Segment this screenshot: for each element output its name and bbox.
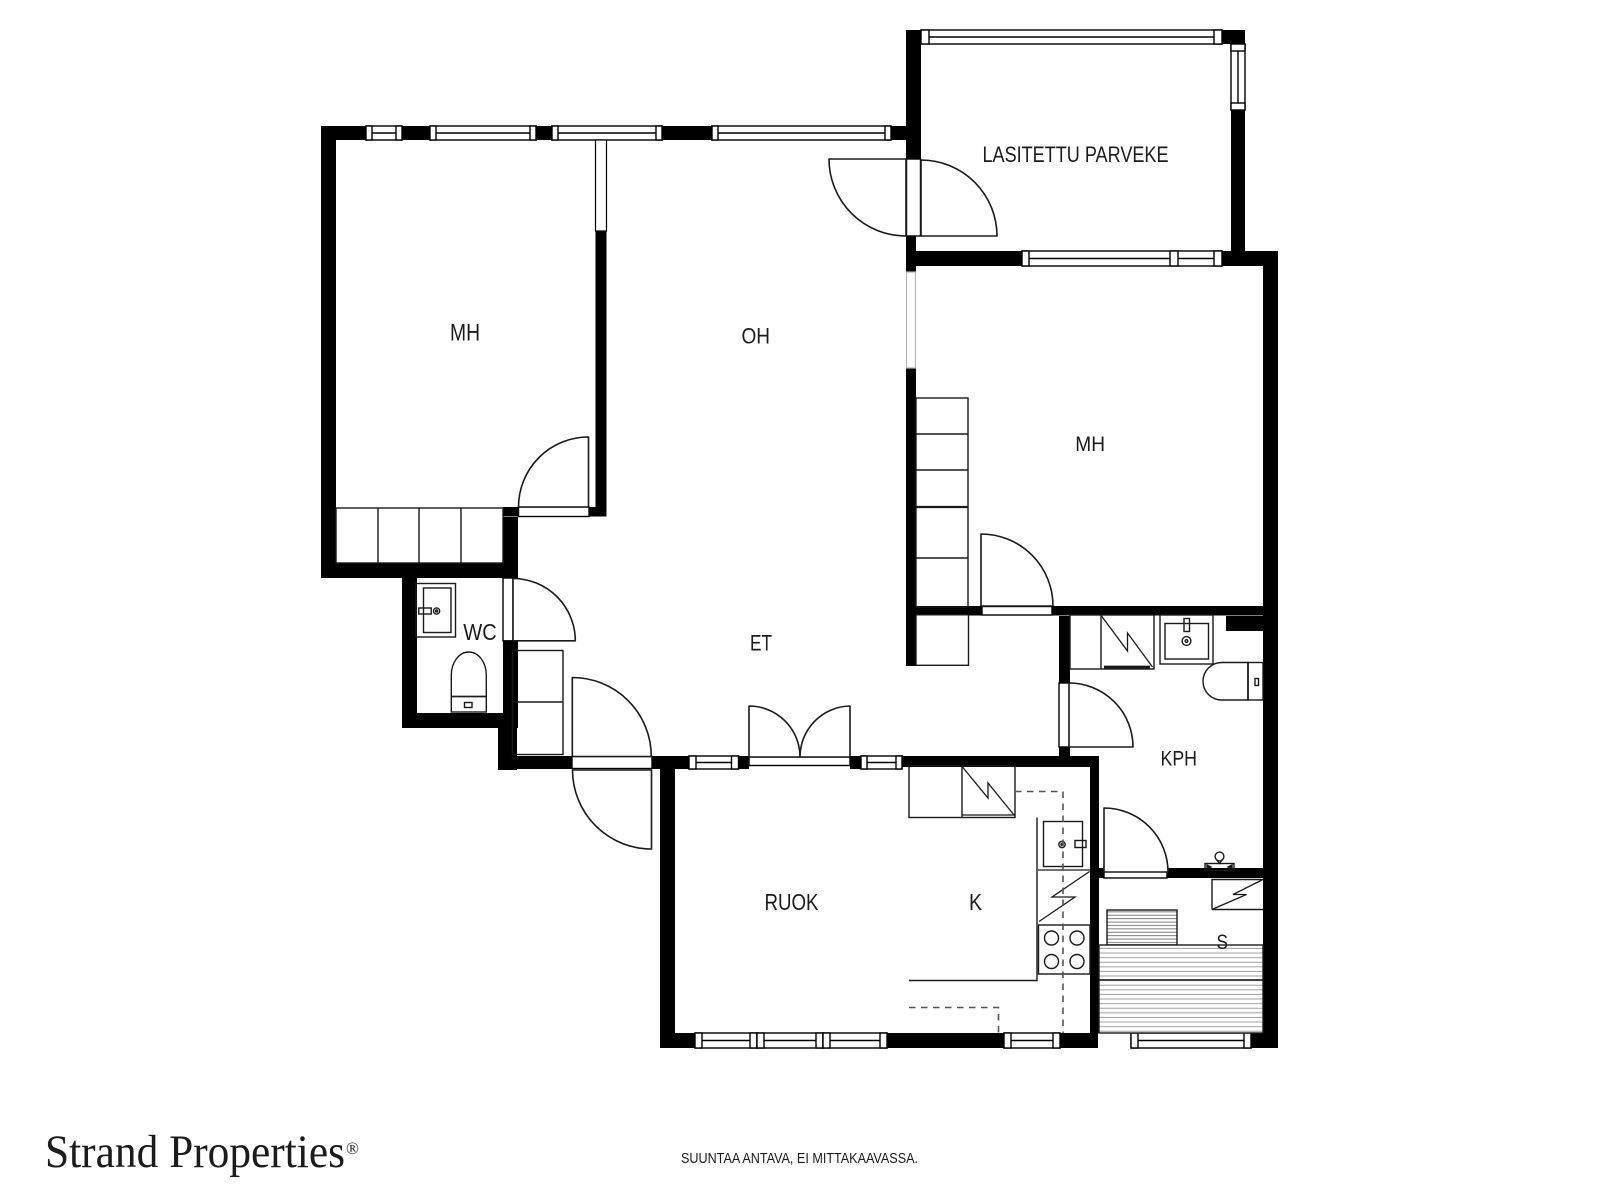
svg-text:MH: MH — [1075, 433, 1105, 456]
svg-text:RUOK: RUOK — [765, 889, 820, 915]
svg-text:OH: OH — [742, 324, 771, 349]
svg-text:K: K — [969, 889, 983, 915]
svg-text:ET: ET — [750, 631, 772, 656]
svg-text:SUUNTAA ANTAVA, EI MITTAKAAVAS: SUUNTAA ANTAVA, EI MITTAKAAVASSA. — [681, 1151, 918, 1167]
svg-text:LASITETTU PARVEKE: LASITETTU PARVEKE — [983, 142, 1169, 167]
svg-text:WC: WC — [463, 619, 497, 645]
svg-text:KPH: KPH — [1161, 748, 1198, 771]
svg-text:®: ® — [346, 1139, 359, 1158]
svg-text:S: S — [1217, 931, 1229, 954]
svg-text:Strand Properties: Strand Properties — [45, 1126, 345, 1178]
svg-text:MH: MH — [450, 320, 480, 347]
